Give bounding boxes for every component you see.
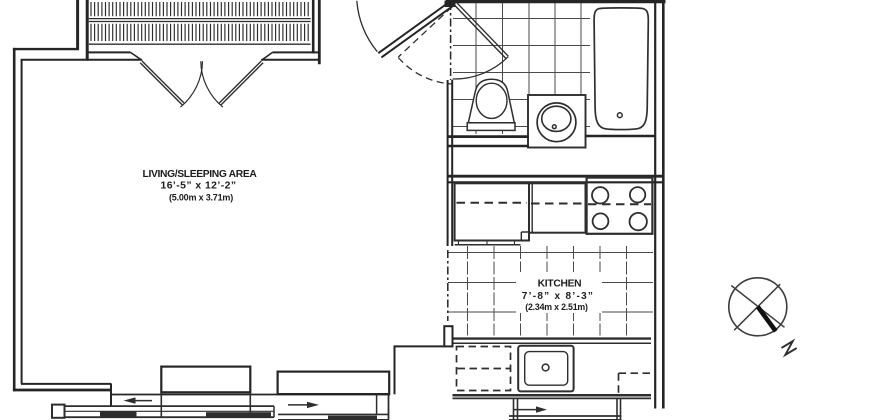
- svg-text:(2.34m x 2.51m): (2.34m x 2.51m): [525, 302, 588, 312]
- svg-text:16’-5” x 12’-2”: 16’-5” x 12’-2”: [160, 181, 236, 192]
- svg-text:KITCHEN: KITCHEN: [538, 279, 582, 290]
- svg-text:LIVING/SLEEPING AREA: LIVING/SLEEPING AREA: [143, 169, 258, 180]
- svg-text:7’-8” x 8’-3”: 7’-8” x 8’-3”: [522, 291, 594, 302]
- svg-text:(5.00m x 3.71m): (5.00m x 3.71m): [169, 193, 233, 203]
